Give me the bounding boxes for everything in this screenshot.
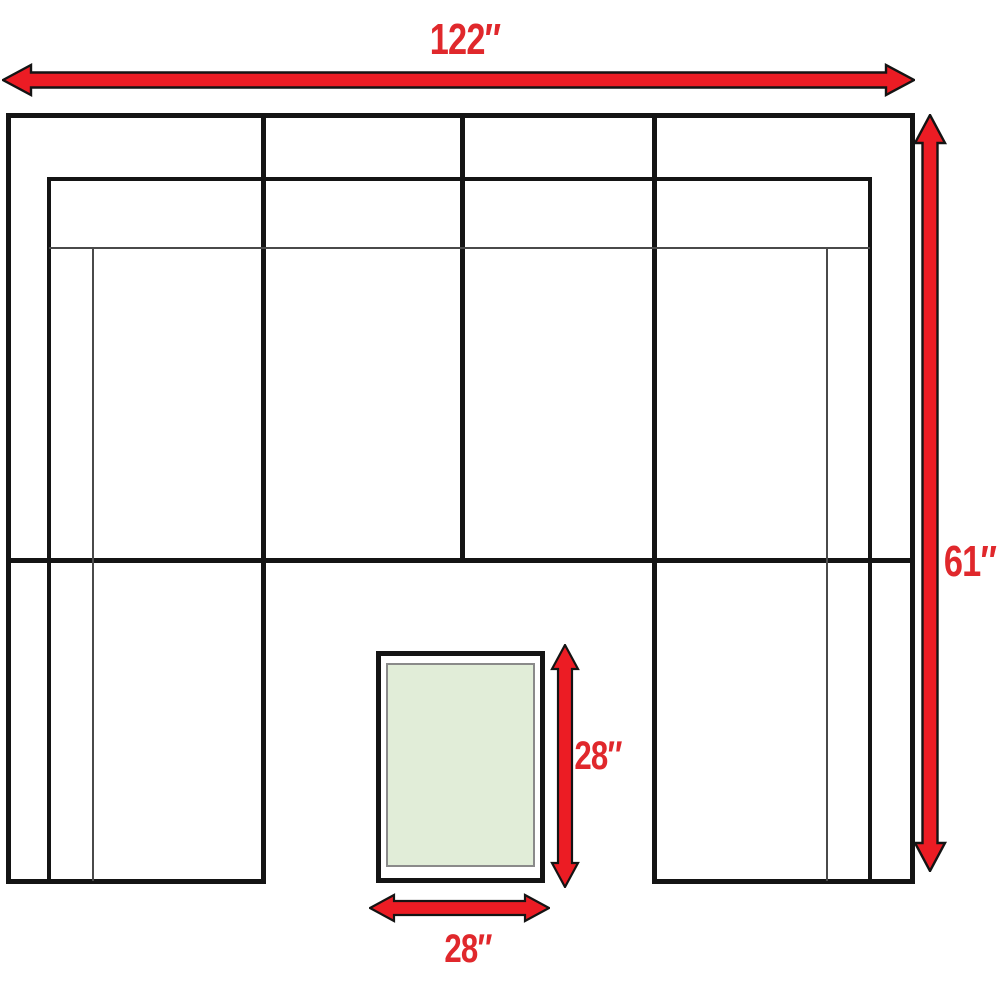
backrest-inner-left [47, 177, 51, 882]
double-arrow-shape [370, 895, 549, 921]
right-chaise-bottom-edge [652, 879, 915, 884]
section-divider-left [261, 113, 266, 884]
overall-depth-arrow [913, 114, 947, 872]
sectional-dimension-diagram: 122″ 61″ 28″ 28″ [0, 0, 1000, 1000]
ottoman-width-arrow [369, 893, 550, 923]
ottoman-width-label: 28″ [437, 929, 499, 969]
backrest-inner-right [868, 177, 872, 882]
backrest-inner-top [47, 177, 872, 181]
overall-depth-label: 61″ [939, 540, 1000, 584]
cushion-line-left [92, 247, 94, 881]
left-chaise-bottom-edge [6, 879, 266, 884]
overall-width-arrow [2, 63, 915, 97]
cushion-line-right [826, 247, 828, 881]
section-divider-right [652, 113, 657, 884]
sofa-outline-left [6, 113, 11, 884]
ottoman-cushion [386, 663, 535, 867]
double-arrow-shape [3, 65, 914, 95]
double-arrow-shape [915, 115, 945, 871]
cushion-line-horizontal [49, 247, 870, 249]
overall-width-label: 122″ [407, 18, 524, 62]
ottoman-depth-label: 28″ [567, 736, 629, 776]
